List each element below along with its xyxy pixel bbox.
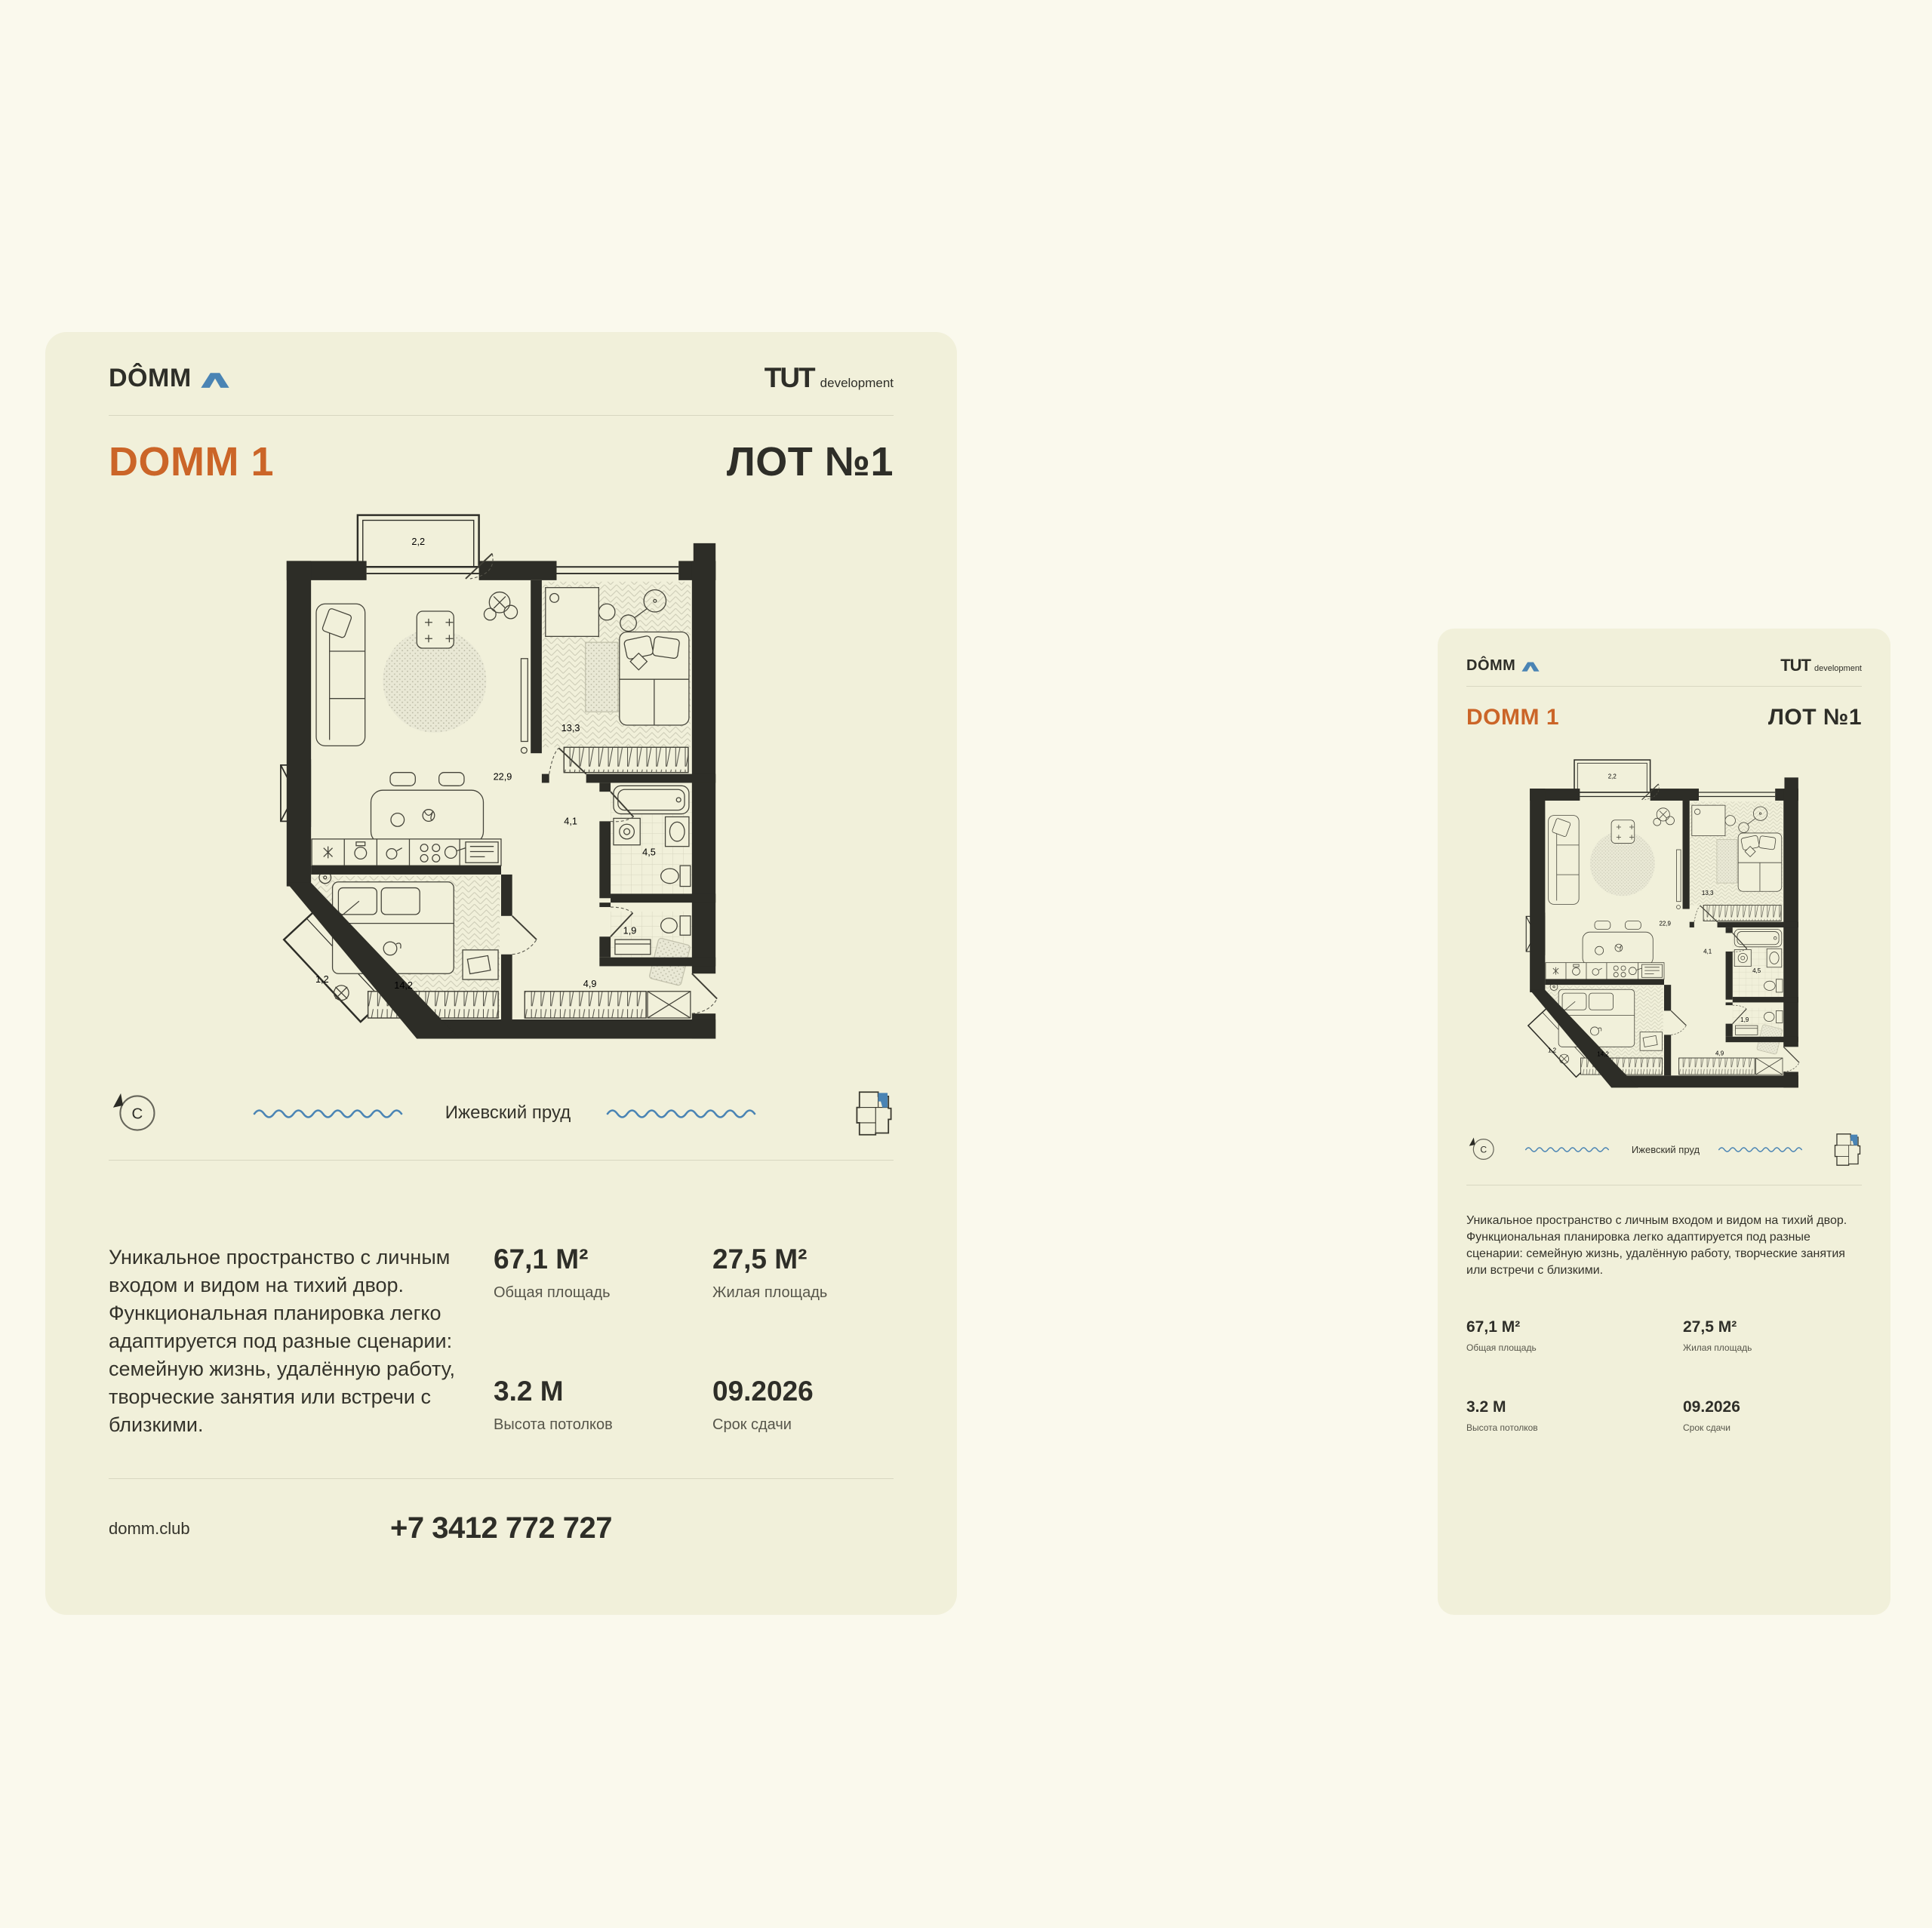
stat-total-area: 67,1 М² Общая площадь	[1466, 1318, 1683, 1353]
developer-name: TUT	[1780, 656, 1810, 675]
stat-value: 67,1 М²	[494, 1244, 712, 1275]
lot-card-large: DÔMM TUT development DOMM 1 ЛОТ №1 Ижевс…	[45, 332, 957, 1615]
building-plan-icon	[854, 1090, 894, 1136]
brand-row: DÔMM TUT development	[109, 362, 894, 394]
stat-label: Срок сдачи	[712, 1416, 894, 1434]
stat-value: 09.2026	[1683, 1398, 1857, 1416]
water-caption: Ижевский пруд	[252, 1102, 764, 1124]
header-divider	[1466, 686, 1862, 687]
water-label: Ижевский пруд	[445, 1102, 571, 1124]
lot-number: ЛОТ №1	[1768, 705, 1862, 730]
domm-logo-text: DÔMM	[109, 364, 192, 393]
wave-left-icon	[252, 1107, 411, 1119]
stat-completion-date: 09.2026 Срок сдачи	[712, 1376, 894, 1434]
stat-completion-date: 09.2026 Срок сдачи	[1683, 1398, 1857, 1433]
stat-value: 3.2 М	[1466, 1398, 1683, 1416]
wave-left-icon	[1524, 1145, 1614, 1153]
info-row: Уникальное пространство с личным входом …	[109, 1244, 894, 1439]
stats-grid: 67,1 М² Общая площадь 27,5 М² Жилая площ…	[1466, 1318, 1862, 1433]
stat-ceiling-height: 3.2 М Высота потолков	[494, 1376, 712, 1434]
compass-row: Ижевский пруд	[109, 1083, 894, 1143]
section-divider	[1466, 1185, 1862, 1185]
project-title: DOMM 1	[109, 438, 274, 485]
stat-label: Жилая площадь	[712, 1284, 894, 1302]
stat-living-area: 27,5 М² Жилая площадь	[712, 1244, 894, 1302]
header-divider	[109, 415, 894, 416]
section-divider	[109, 1160, 894, 1161]
stat-value: 09.2026	[712, 1376, 894, 1407]
developer-suffix: development	[1814, 664, 1862, 673]
roof-chevron-icon	[1521, 659, 1540, 672]
website-link[interactable]: domm.club	[109, 1519, 190, 1539]
stats-grid: 67,1 М² Общая площадь 27,5 М² Жилая площ…	[494, 1244, 894, 1439]
stat-label: Высота потолков	[1466, 1422, 1683, 1433]
roof-chevron-icon	[199, 367, 231, 389]
stat-label: Жилая площадь	[1683, 1342, 1857, 1353]
compass-icon	[109, 1089, 162, 1137]
stat-label: Общая площадь	[1466, 1342, 1683, 1353]
stat-value: 27,5 М²	[1683, 1318, 1857, 1336]
lot-number: ЛОТ №1	[727, 438, 894, 485]
developer-logo: TUT development	[1780, 656, 1862, 675]
phone-link[interactable]: +7 3412 772 727	[390, 1511, 612, 1545]
description: Уникальное пространство с личным входом …	[109, 1244, 469, 1439]
stat-value: 3.2 М	[494, 1376, 712, 1407]
domm-logo: DÔMM	[1466, 657, 1540, 675]
compass-icon	[1466, 1135, 1498, 1164]
title-row: DOMM 1 ЛОТ №1	[109, 438, 894, 485]
wave-right-icon	[605, 1107, 764, 1119]
stat-label: Высота потолков	[494, 1416, 712, 1434]
floor-plan	[279, 502, 723, 1064]
stat-label: Общая площадь	[494, 1284, 712, 1302]
lot-card-small: DÔMM TUT development DOMM 1 ЛОТ №1 Ижевс…	[1438, 629, 1890, 1615]
project-title: DOMM 1	[1466, 705, 1559, 730]
developer-name: TUT	[764, 362, 814, 394]
wave-right-icon	[1718, 1145, 1807, 1153]
floor-plan-area	[1466, 744, 1862, 1111]
stat-label: Срок сдачи	[1683, 1422, 1857, 1433]
brand-row: DÔMM TUT development	[1466, 656, 1862, 675]
developer-suffix: development	[820, 376, 894, 391]
footer: domm.club +7 3412 772 727	[109, 1505, 894, 1553]
footer-divider	[109, 1478, 894, 1479]
water-caption: Ижевский пруд	[1524, 1144, 1807, 1155]
water-label: Ижевский пруд	[1632, 1144, 1700, 1155]
stat-total-area: 67,1 М² Общая площадь	[494, 1244, 712, 1302]
title-row: DOMM 1 ЛОТ №1	[1466, 705, 1862, 730]
description: Уникальное пространство с личным входом …	[1466, 1213, 1847, 1279]
stat-living-area: 27,5 М² Жилая площадь	[1683, 1318, 1857, 1353]
stat-ceiling-height: 3.2 М Высота потолков	[1466, 1398, 1683, 1433]
developer-logo: TUT development	[764, 362, 894, 394]
stat-value: 27,5 М²	[712, 1244, 894, 1275]
compass-row: Ижевский пруд	[1466, 1130, 1862, 1168]
domm-logo-text: DÔMM	[1466, 657, 1515, 675]
floor-plan-area	[109, 496, 894, 1069]
domm-logo: DÔMM	[109, 364, 231, 393]
page: { "colors": { "page_bg": "#FAF9ED", "car…	[0, 0, 1932, 1928]
building-plan-icon	[1833, 1133, 1862, 1167]
floor-plan	[1525, 752, 1803, 1103]
stat-value: 67,1 М²	[1466, 1318, 1683, 1336]
